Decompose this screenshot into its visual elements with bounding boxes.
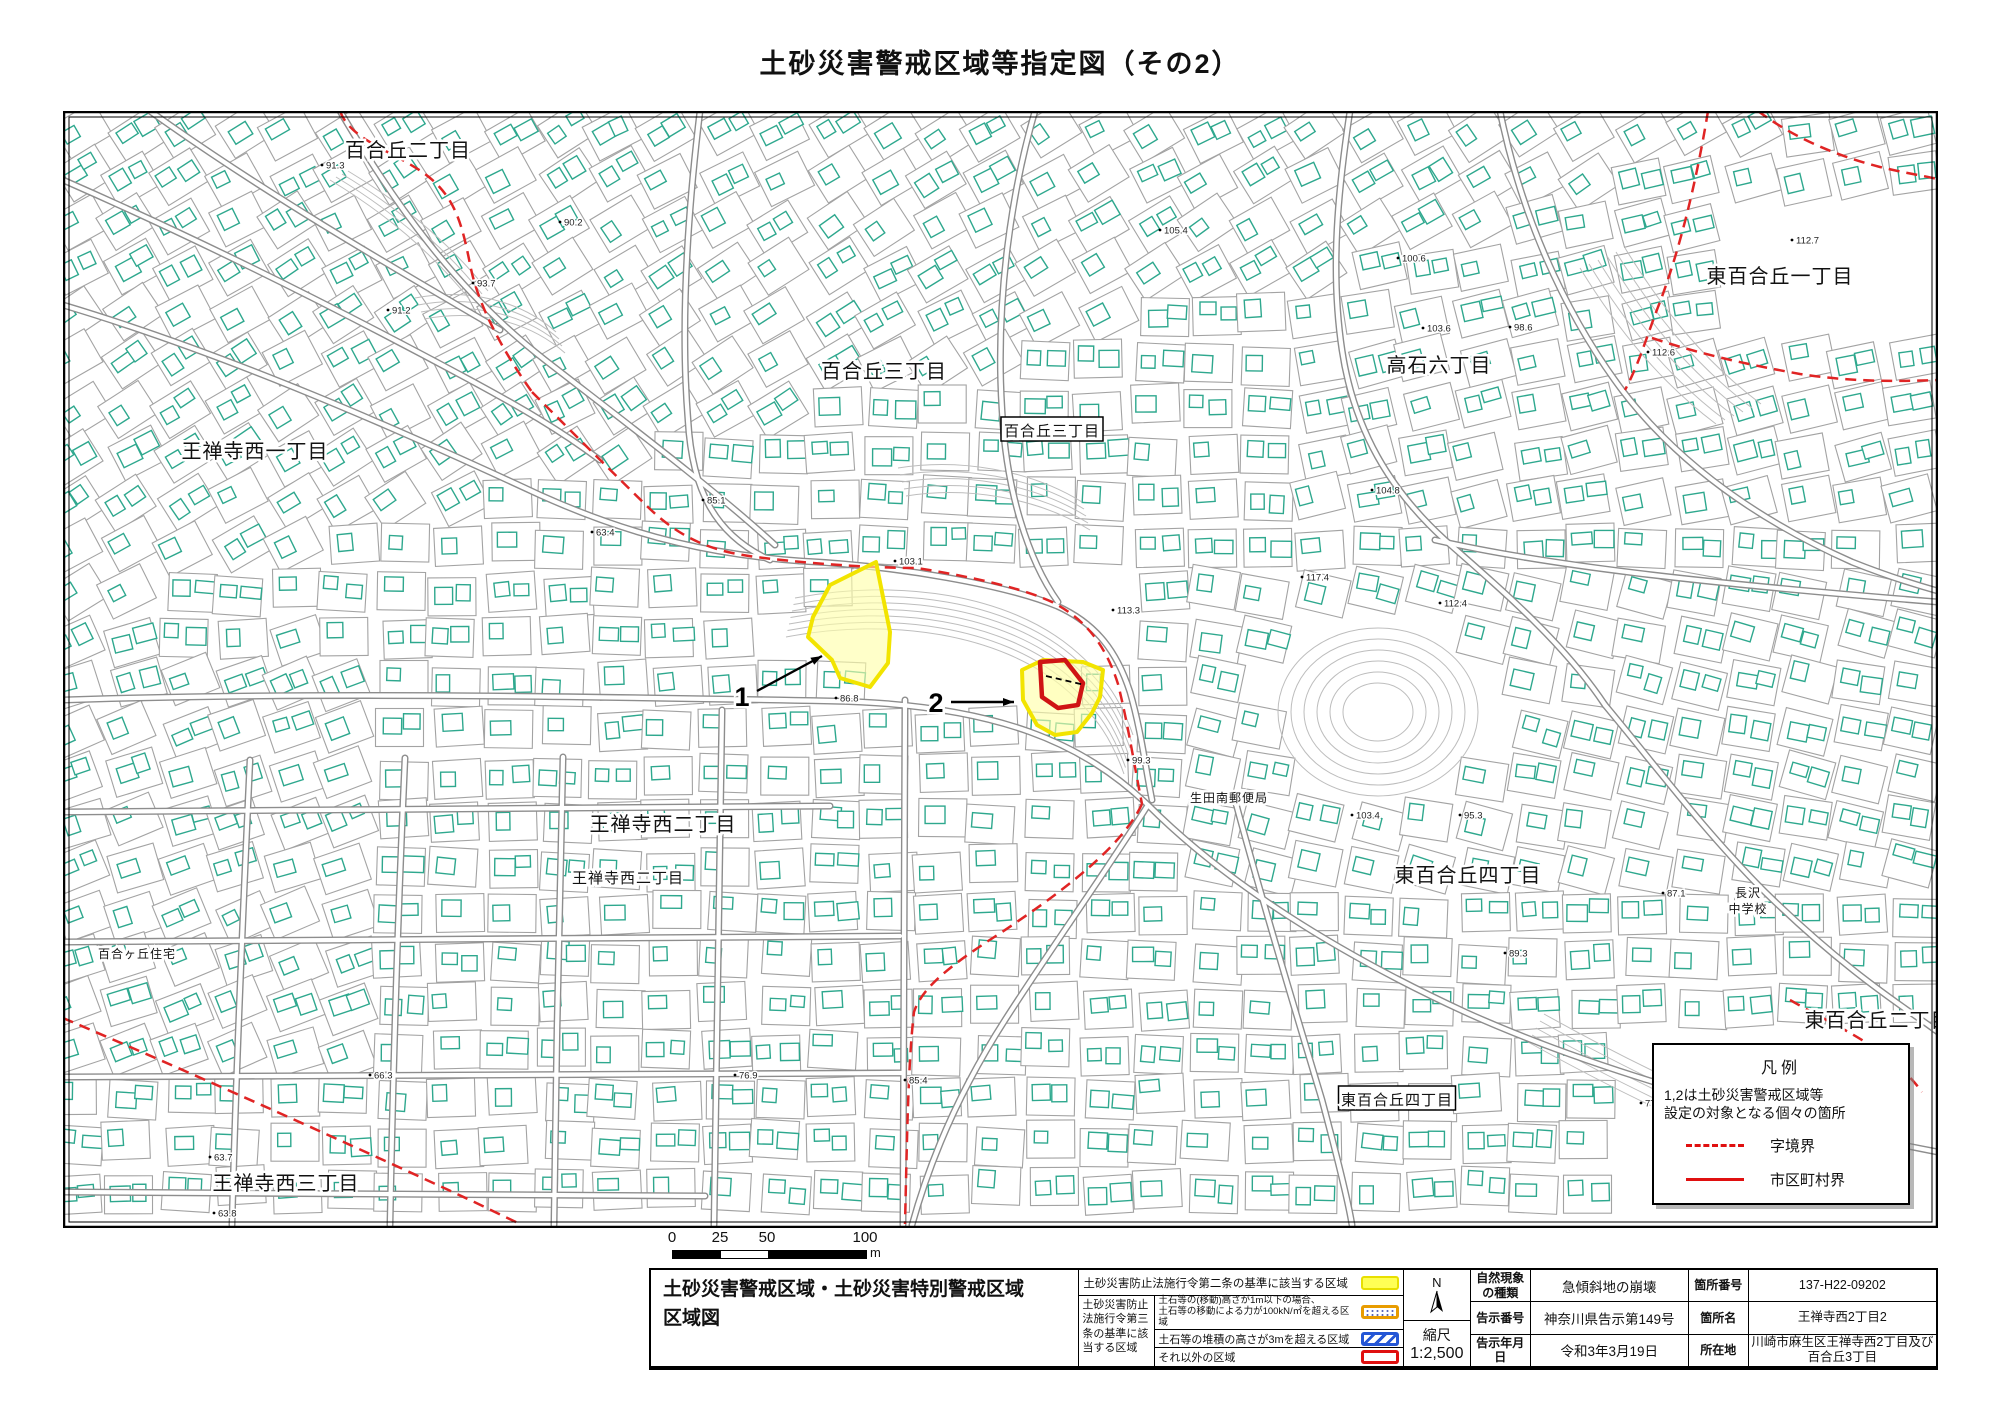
place-label: 王禅寺西一丁目	[182, 440, 329, 463]
map-block	[813, 387, 863, 427]
map-block	[1777, 159, 1832, 206]
scale-value: 1:2,500	[1410, 1345, 1463, 1363]
map-block	[1352, 802, 1408, 851]
map-block	[967, 1077, 1016, 1117]
map-block	[1773, 615, 1828, 663]
map-block	[1515, 891, 1565, 931]
svg-text:103.4: 103.4	[1356, 811, 1380, 822]
map-block	[1723, 795, 1778, 842]
map-block	[486, 571, 537, 612]
map-block	[1344, 896, 1393, 936]
map-block	[97, 701, 156, 755]
map-block	[381, 523, 430, 562]
map-block	[1614, 246, 1669, 293]
map-block	[761, 757, 809, 795]
map-block	[63, 840, 110, 893]
map-block	[644, 757, 692, 795]
map-sheet: 土砂災害警戒区域等指定図（その2） 1291.390.293.791.2105.…	[0, 0, 2000, 1414]
map-block	[1356, 988, 1405, 1028]
map-block	[104, 238, 164, 294]
map-block	[214, 755, 272, 806]
sheet-title: 土砂災害警戒区域・土砂災害特別警戒区域 区域図	[651, 1270, 1079, 1366]
map-block	[538, 981, 588, 1021]
scale-tick-25: 25	[712, 1229, 729, 1246]
map-block	[1674, 616, 1729, 663]
map-block	[1026, 1077, 1075, 1116]
map-block	[755, 151, 815, 206]
map-block	[1399, 430, 1453, 476]
map-block	[591, 1036, 639, 1074]
map-block	[480, 1031, 529, 1070]
map-block	[212, 516, 273, 573]
map-block	[965, 804, 1015, 845]
map-block	[317, 571, 367, 612]
map-block	[1564, 1175, 1612, 1213]
map-block	[1188, 479, 1238, 519]
map-block	[1455, 757, 1508, 802]
svg-text:東百合丘一丁目: 東百合丘一丁目	[1707, 265, 1854, 288]
zone-number-label: 2	[928, 688, 943, 718]
map-block	[1135, 528, 1184, 567]
map-block	[865, 437, 913, 475]
legend-note-line1: 1,2は土砂災害警戒区域等	[1664, 1086, 1898, 1104]
map-block	[809, 111, 870, 158]
map-block	[260, 886, 319, 940]
map-block	[974, 1127, 1024, 1168]
map-block	[811, 942, 860, 982]
svg-text:王禅寺西二丁目: 王禅寺西二丁目	[590, 813, 737, 836]
svg-text:63.4: 63.4	[596, 528, 615, 539]
map-block	[1141, 298, 1190, 337]
place-label: 生田南郵便局	[1190, 790, 1268, 805]
map-block	[1177, 193, 1238, 251]
map-block	[104, 792, 163, 846]
map-block	[492, 522, 540, 561]
map-block	[1779, 750, 1836, 800]
map-block	[428, 578, 476, 616]
map-block	[1670, 708, 1725, 755]
map-block	[1193, 989, 1242, 1029]
svg-text:103.1: 103.1	[899, 557, 923, 568]
map-block	[1455, 379, 1511, 427]
svg-text:112.4: 112.4	[1444, 599, 1467, 610]
map-block	[487, 1075, 537, 1116]
map-block	[1783, 843, 1838, 891]
map-block	[1139, 990, 1189, 1031]
map-block	[1828, 801, 1884, 849]
map-block	[1235, 574, 1289, 620]
map-block	[749, 1118, 799, 1159]
map-block	[318, 1074, 367, 1113]
map-block	[63, 798, 111, 848]
notice-info-table: 自然現象の種類 急傾斜地の崩壊 箇所番号 137-H22-09202 告示番号 …	[1471, 1270, 1936, 1366]
map-block	[642, 990, 691, 1029]
map-block	[1779, 795, 1832, 840]
map-block	[762, 986, 811, 1025]
legend-row-move-force: 土石等の(移動)高さが1m以下の場合、 土石等の移動による力が100kN/㎡を超…	[1155, 1296, 1402, 1330]
map-block	[1782, 475, 1836, 521]
map-block	[377, 572, 426, 611]
title-block: 土砂災害警戒区域・土砂災害特別警戒区域 区域図 土砂災害防止法施行令第二条の基準…	[649, 1268, 1938, 1370]
map-block	[1131, 383, 1181, 423]
map-block	[425, 618, 474, 658]
map-block	[1244, 528, 1293, 567]
map-block	[322, 889, 379, 940]
map-block	[1194, 1079, 1243, 1118]
map-block	[808, 891, 860, 932]
map-block	[1136, 343, 1186, 383]
map-block	[1027, 477, 1075, 515]
svg-text:93.7: 93.7	[477, 279, 496, 290]
map-block	[1506, 573, 1561, 621]
map-block	[651, 1123, 700, 1162]
map-block	[1236, 615, 1292, 663]
map-block	[322, 1126, 372, 1165]
map-block	[1403, 937, 1452, 977]
map-block	[1019, 292, 1079, 348]
map-block	[1567, 1080, 1615, 1119]
article3-label: 土砂災害防止法施行令第三条の基準に該当する区域	[1079, 1296, 1155, 1366]
map-block	[921, 475, 971, 516]
map-block	[1086, 893, 1135, 932]
map-block	[1723, 613, 1779, 661]
svg-text:87.1: 87.1	[1667, 889, 1686, 900]
map-block	[1462, 1125, 1511, 1164]
table-row: 自然現象の種類 急傾斜地の崩壊 箇所番号 137-H22-09202	[1471, 1270, 1936, 1302]
map-block	[588, 761, 636, 800]
map-block	[1725, 153, 1782, 203]
map-block	[918, 385, 966, 423]
map-block	[1080, 939, 1130, 980]
map-block	[1666, 111, 1726, 156]
map-block	[1399, 898, 1448, 938]
map-block	[593, 480, 642, 520]
map-block	[748, 237, 809, 295]
map-block	[1245, 1034, 1295, 1074]
map-block	[533, 336, 594, 393]
map-block	[1351, 1172, 1400, 1211]
map-block	[1669, 939, 1719, 979]
map-block	[1674, 754, 1727, 799]
map-block	[744, 287, 805, 344]
map-block	[1127, 437, 1177, 477]
north-label: N	[1432, 1276, 1441, 1289]
map-block	[653, 1081, 702, 1121]
svg-text:90.2: 90.2	[564, 218, 583, 229]
map-block	[1672, 849, 1725, 894]
scale-tick-0: 0	[668, 1229, 676, 1246]
map-block	[1507, 1123, 1557, 1163]
map-block	[1456, 615, 1512, 664]
map-block	[1558, 153, 1619, 211]
map-block	[1289, 1175, 1337, 1214]
map-block	[1680, 894, 1729, 933]
map-block	[212, 576, 262, 617]
map-block	[1029, 981, 1079, 1021]
map-block	[1451, 1073, 1501, 1114]
map-block	[1558, 846, 1614, 895]
map-block	[434, 706, 484, 747]
map-block	[1782, 655, 1838, 704]
map-block	[696, 381, 756, 437]
map-block	[100, 1023, 159, 1076]
map-block	[1612, 618, 1666, 663]
map-block	[63, 890, 112, 942]
map-block	[485, 760, 534, 799]
legend-item-aza-boundary: 字境界	[1664, 1135, 1898, 1156]
map-block	[434, 1128, 484, 1168]
map-block	[1138, 621, 1188, 662]
map-block	[1833, 477, 1887, 523]
svg-text:112.7: 112.7	[1796, 236, 1819, 247]
scale-unit: m	[870, 1245, 881, 1260]
svg-text:王禅寺西一丁目: 王禅寺西一丁目	[182, 440, 329, 463]
map-block	[1565, 940, 1614, 980]
zone-legend-table: 土砂災害防止法施行令第二条の基準に該当する区域 土砂災害防止法施行令第三条の基準…	[1079, 1270, 1403, 1366]
map-block	[263, 516, 323, 572]
place-label: 百合ヶ丘住宅	[98, 946, 176, 961]
svg-text:112.6: 112.6	[1652, 348, 1675, 359]
svg-text:東百合丘四丁目: 東百合丘四丁目	[1395, 864, 1542, 887]
map-block	[1182, 800, 1236, 846]
map-block	[1611, 158, 1666, 205]
map-block	[1888, 754, 1938, 802]
map-block	[1679, 990, 1729, 1030]
map-block	[1512, 710, 1568, 758]
map-block	[1460, 1166, 1509, 1206]
map-block	[1727, 936, 1777, 976]
map-block	[1562, 382, 1618, 431]
map-block	[1400, 797, 1453, 842]
swatch-orange-dots-zone	[1361, 1305, 1399, 1319]
map-block	[855, 292, 916, 349]
map-block	[539, 613, 590, 654]
map-block	[959, 111, 1020, 162]
map-block	[1559, 1120, 1607, 1158]
map-block	[1133, 475, 1182, 515]
scale-seg-black	[673, 1251, 721, 1258]
map-block	[210, 286, 270, 342]
map-block	[812, 713, 862, 754]
map-block	[491, 987, 539, 1026]
scale-tick-50: 50	[759, 1229, 776, 1246]
map-block	[320, 617, 368, 656]
map-block	[1083, 1174, 1133, 1215]
svg-text:105.4: 105.4	[1164, 226, 1188, 237]
map-block	[533, 758, 582, 797]
map-block	[1079, 286, 1139, 342]
scale-cell: 縮尺 1:2,500	[1404, 1321, 1470, 1366]
map-block	[599, 894, 649, 935]
map-block	[158, 843, 216, 895]
map-block	[150, 381, 211, 439]
map-block	[1888, 430, 1938, 476]
svg-text:長沢: 長沢	[1735, 886, 1761, 900]
map-block	[1668, 290, 1721, 334]
map-block	[1675, 529, 1724, 568]
map-block	[272, 568, 321, 607]
map-block	[434, 526, 484, 566]
map-block	[106, 747, 163, 797]
map-block	[365, 471, 426, 529]
map-block	[591, 945, 640, 984]
map-block	[1015, 239, 1076, 296]
map-block	[703, 1124, 753, 1165]
svg-text:王禅寺西二丁目: 王禅寺西二丁目	[572, 870, 684, 887]
map-block	[1020, 341, 1070, 381]
svg-text:66.3: 66.3	[374, 1071, 393, 1082]
map-block	[702, 1028, 752, 1069]
map-block	[970, 936, 1020, 977]
map-block	[761, 1174, 811, 1215]
svg-text:89.3: 89.3	[1509, 949, 1528, 960]
map-block	[699, 938, 749, 978]
map-block	[1407, 1169, 1457, 1210]
map-block	[1176, 245, 1236, 301]
svg-text:63.7: 63.7	[214, 1153, 233, 1164]
map-block	[108, 1079, 158, 1120]
place-label: 百合丘二丁目	[345, 139, 471, 162]
map-block	[433, 1030, 482, 1069]
map-block	[969, 844, 1018, 883]
north-arrow-icon	[1427, 1289, 1447, 1315]
map-block	[1835, 382, 1890, 430]
map-block	[699, 111, 759, 156]
map-block	[1834, 704, 1889, 750]
map-block	[1883, 380, 1937, 425]
map-block	[912, 852, 962, 893]
map-block	[1554, 111, 1615, 161]
map-block	[378, 1080, 427, 1120]
map-block	[1073, 339, 1122, 378]
map-block	[314, 843, 372, 894]
map-block	[160, 747, 217, 798]
map-block	[912, 1037, 961, 1076]
map-block	[1295, 530, 1345, 571]
map-block	[488, 894, 536, 933]
map-block	[436, 894, 485, 933]
map-block	[1192, 297, 1241, 336]
map-block	[1509, 1174, 1559, 1214]
map-block	[1890, 334, 1938, 380]
red-dashed-line-icon	[1686, 1144, 1744, 1147]
map-block	[380, 986, 429, 1025]
map-block	[701, 848, 749, 886]
map-block	[1615, 198, 1671, 247]
map-block	[366, 426, 427, 483]
map-block	[1457, 945, 1507, 986]
map-block	[1242, 388, 1292, 429]
map-block	[1069, 196, 1130, 253]
map-block	[1285, 148, 1345, 204]
map-block	[1880, 111, 1938, 155]
map-block	[809, 237, 870, 295]
scale-bar-rule	[672, 1250, 867, 1259]
map-block	[271, 797, 330, 850]
map-block	[972, 756, 1021, 795]
map-block	[1664, 204, 1720, 253]
map-block	[1882, 839, 1938, 888]
place-label: 王禅寺西二丁目	[572, 870, 684, 887]
map-block	[1184, 343, 1233, 382]
svg-text:86.8: 86.8	[840, 694, 859, 705]
map-block	[750, 111, 811, 160]
map-block	[532, 237, 593, 295]
map-block	[1183, 111, 1243, 163]
map-block	[218, 618, 268, 659]
map-block	[1287, 294, 1340, 339]
map-block	[484, 710, 533, 749]
map-block	[1882, 795, 1936, 841]
svg-text:95.3: 95.3	[1464, 811, 1483, 822]
legend-row-deposit: 土石等の堆積の高さが3mを超える区域	[1155, 1330, 1402, 1349]
elevation-point: 63.8	[213, 1209, 237, 1220]
map-block	[1612, 801, 1668, 849]
map-block	[1031, 751, 1081, 791]
place-label: 王禅寺西二丁目	[590, 813, 737, 836]
map-block	[1083, 989, 1133, 1029]
map-block	[1893, 899, 1938, 938]
map-block	[1718, 337, 1775, 387]
swatch-blue-hatch-zone	[1361, 1332, 1399, 1346]
map-block	[913, 893, 963, 934]
svg-text:高石六丁目: 高石六丁目	[1387, 354, 1492, 377]
scale-bar: 0 25 50 100 m	[660, 1229, 900, 1265]
map-block	[1288, 794, 1344, 842]
map-block	[207, 332, 268, 389]
map-block	[1772, 572, 1827, 619]
map-block	[697, 981, 747, 1021]
map-block	[859, 755, 908, 794]
map-block	[329, 523, 379, 564]
map-block	[1392, 193, 1452, 250]
map-block	[587, 1078, 637, 1119]
map-block	[1237, 292, 1286, 332]
svg-text:91.2: 91.2	[392, 306, 411, 317]
map-block	[1619, 848, 1673, 894]
map-block	[159, 618, 208, 657]
map-block	[1883, 707, 1938, 755]
map-block	[1558, 803, 1612, 848]
map-block	[157, 473, 218, 531]
map-block	[1462, 1037, 1512, 1077]
map-block	[376, 709, 424, 747]
map-block	[1838, 609, 1895, 659]
map-block	[206, 842, 263, 892]
map-block	[1298, 984, 1347, 1023]
map-block	[1244, 482, 1293, 521]
map-block	[540, 937, 589, 977]
map-block	[207, 798, 265, 849]
map-block	[752, 1035, 801, 1074]
map-block	[1832, 660, 1885, 705]
map-block	[1829, 111, 1885, 156]
map-block	[1132, 1169, 1182, 1209]
map-block	[1564, 753, 1619, 800]
elevation-point: 103.4	[1351, 811, 1380, 822]
svg-text:117.4: 117.4	[1306, 573, 1329, 584]
map-block	[431, 471, 491, 527]
map-block	[869, 1129, 918, 1169]
map-block	[1240, 435, 1289, 474]
map-block	[478, 1125, 528, 1165]
red-solid-line-icon	[1686, 1178, 1744, 1181]
map-block	[641, 710, 691, 750]
map-block	[1030, 1167, 1078, 1205]
map-block	[1775, 433, 1829, 479]
svg-text:85.4: 85.4	[909, 1076, 928, 1087]
map-block	[1722, 111, 1782, 157]
